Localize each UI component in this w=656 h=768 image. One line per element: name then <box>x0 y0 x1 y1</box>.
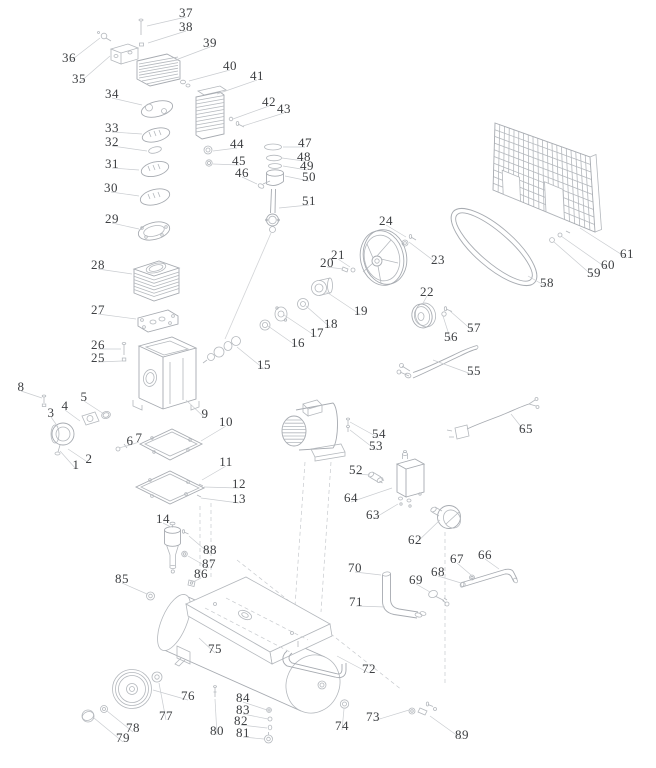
part-label-26: 26 <box>91 337 105 353</box>
motor-bolts <box>346 418 349 432</box>
part-label-32: 32 <box>105 134 119 150</box>
part-label-2: 2 <box>86 451 93 467</box>
part-label-77: 77 <box>159 708 173 724</box>
part-label-75: 75 <box>208 641 222 657</box>
breather-fitting <box>98 32 112 42</box>
part-label-28: 28 <box>91 257 105 273</box>
cylinder-gasket <box>138 310 178 332</box>
part-label-23: 23 <box>431 252 445 268</box>
valve-plate-upper <box>140 98 175 120</box>
part-label-10: 10 <box>219 414 233 430</box>
cylinder-head <box>137 54 180 86</box>
part-label-14: 14 <box>156 511 170 527</box>
shaft-key-and-nut <box>342 267 355 272</box>
valve-bolt-8 <box>42 395 46 407</box>
part-label-27: 27 <box>91 302 105 318</box>
part-label-64: 64 <box>344 490 358 506</box>
hex-nut-44 <box>204 146 212 154</box>
check-valve <box>51 423 74 455</box>
seal-18 <box>298 299 309 310</box>
part-label-76: 76 <box>181 688 195 704</box>
part-label-56: 56 <box>444 329 458 345</box>
part-label-87: 87 <box>202 556 216 572</box>
axle-washer <box>101 706 108 713</box>
drive-belt <box>440 196 548 297</box>
part-label-9: 9 <box>202 406 209 422</box>
part-label-41: 41 <box>250 68 264 84</box>
tank-plug <box>340 700 348 708</box>
part-label-73: 73 <box>366 709 380 725</box>
part-label-85: 85 <box>115 571 129 587</box>
air-filter <box>165 522 189 573</box>
part-label-13: 13 <box>232 491 246 507</box>
part-label-43: 43 <box>277 101 291 117</box>
part-label-68: 68 <box>431 564 445 580</box>
diagram-artwork <box>0 0 656 768</box>
belt-guard-grille <box>493 123 602 232</box>
head-cover <box>111 44 138 64</box>
pressure-switch <box>397 451 424 508</box>
part-label-89: 89 <box>455 727 469 743</box>
after-cooler-finned-cylinder <box>196 86 226 139</box>
valve-plate <box>141 125 171 144</box>
part-label-42: 42 <box>262 94 276 110</box>
base-plate-11 <box>136 471 204 504</box>
part-label-80: 80 <box>210 723 224 739</box>
part-label-11: 11 <box>219 454 233 470</box>
part-label-16: 16 <box>291 335 305 351</box>
part-label-60: 60 <box>601 257 615 273</box>
part-label-61: 61 <box>620 246 634 262</box>
washer-16 <box>260 320 270 330</box>
clamp-89 <box>409 702 437 715</box>
part-label-52: 52 <box>349 462 363 478</box>
pressure-gauge <box>430 506 464 532</box>
part-label-21: 21 <box>331 247 345 263</box>
unloader-valve-fitting <box>181 80 191 87</box>
part-label-24: 24 <box>379 213 393 229</box>
valve-plate-lower <box>140 159 171 179</box>
part-label-8: 8 <box>18 379 25 395</box>
elbow-fitting-69 <box>428 589 449 606</box>
part-label-29: 29 <box>105 211 119 227</box>
part-label-35: 35 <box>72 71 86 87</box>
part-label-50: 50 <box>302 169 316 185</box>
crankshaft <box>203 337 241 364</box>
head-screw <box>229 117 244 127</box>
part-label-40: 40 <box>223 58 237 74</box>
part-label-19: 19 <box>354 303 368 319</box>
part-label-18: 18 <box>324 316 338 332</box>
base-gasket-10 <box>140 429 202 460</box>
guard-screws <box>550 231 570 242</box>
cylinder <box>134 261 179 301</box>
part-label-34: 34 <box>105 86 119 102</box>
part-label-74: 74 <box>335 718 349 734</box>
reed-valve <box>148 146 162 155</box>
wheel-washer <box>152 672 162 682</box>
part-label-36: 36 <box>62 50 76 66</box>
part-label-65: 65 <box>519 421 533 437</box>
part-label-4: 4 <box>62 398 69 414</box>
part-label-70: 70 <box>348 560 362 576</box>
part-label-15: 15 <box>257 357 271 373</box>
exploded-parts-diagram: 1234567891011121314151617181920212223242… <box>0 0 656 768</box>
head-bolt <box>139 19 144 46</box>
crankcase <box>133 337 199 410</box>
piston-rings <box>265 144 282 168</box>
part-label-55: 55 <box>467 363 481 379</box>
part-label-69: 69 <box>409 572 423 588</box>
part-label-38: 38 <box>179 19 193 35</box>
part-label-72: 72 <box>362 661 376 677</box>
part-label-67: 67 <box>450 551 464 567</box>
part-label-44: 44 <box>230 136 244 152</box>
part-label-31: 31 <box>105 156 119 172</box>
part-label-88: 88 <box>203 542 217 558</box>
bearing-flange <box>275 307 287 321</box>
grommet-85 <box>147 592 155 600</box>
part-label-71: 71 <box>349 594 363 610</box>
connecting-rod <box>266 189 280 233</box>
part-label-17: 17 <box>310 325 324 341</box>
part-label-54: 54 <box>372 426 386 442</box>
head-gasket <box>136 219 171 243</box>
part-label-59: 59 <box>587 265 601 281</box>
part-label-84: 84 <box>236 690 250 706</box>
axle-stud <box>214 686 217 697</box>
bearing-19 <box>312 278 333 296</box>
hub-cap <box>81 710 95 722</box>
crankcase-bolts <box>122 343 126 362</box>
unloader-tube <box>397 346 478 379</box>
motor-pulley <box>409 301 438 330</box>
motor <box>282 400 345 461</box>
part-label-57: 57 <box>467 320 481 336</box>
part-label-58: 58 <box>540 275 554 291</box>
drain-cock-parts <box>265 708 273 743</box>
part-label-1: 1 <box>73 457 80 473</box>
discharge-pipe-66 <box>460 569 519 587</box>
part-label-46: 46 <box>235 165 249 181</box>
part-label-30: 30 <box>104 180 118 196</box>
part-label-33: 33 <box>105 120 119 136</box>
part-label-66: 66 <box>478 547 492 563</box>
part-label-79: 79 <box>116 730 130 746</box>
part-label-12: 12 <box>232 476 246 492</box>
part-label-6: 6 <box>127 433 134 449</box>
part-label-62: 62 <box>408 532 422 548</box>
tube-fitting-52 <box>367 471 384 483</box>
piston <box>257 170 283 189</box>
valve-seat-plate <box>139 186 172 208</box>
part-label-3: 3 <box>48 405 55 421</box>
part-label-63: 63 <box>366 507 380 523</box>
valve-flange-5 <box>82 410 111 425</box>
part-label-51: 51 <box>302 193 316 209</box>
part-label-22: 22 <box>420 284 434 300</box>
hex-nut-45 <box>206 160 212 166</box>
part-label-39: 39 <box>203 35 217 51</box>
part-label-7: 7 <box>136 430 143 446</box>
part-label-5: 5 <box>81 389 88 405</box>
wheel <box>113 670 152 709</box>
